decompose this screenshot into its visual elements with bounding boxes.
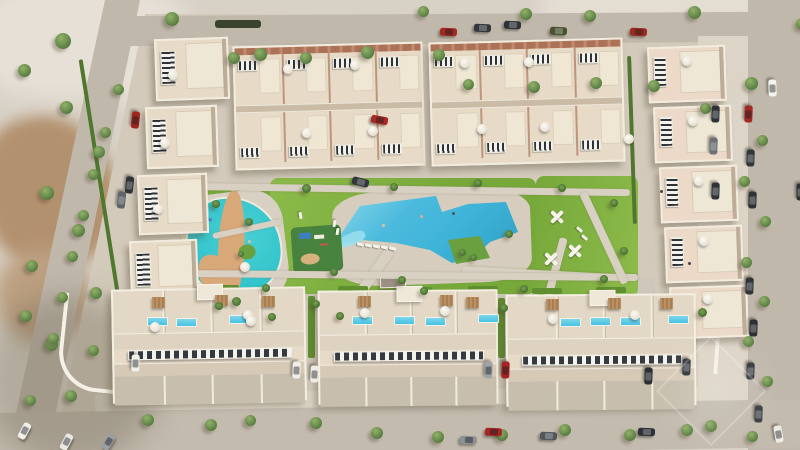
tree	[254, 48, 267, 61]
pergola	[466, 297, 479, 308]
sun-lounger	[373, 244, 381, 249]
hedge	[215, 20, 261, 28]
person	[382, 224, 385, 227]
parasol	[246, 316, 256, 326]
rooftop-pool	[425, 317, 446, 326]
palm-tree	[312, 300, 320, 308]
car	[504, 21, 521, 30]
solar-array	[334, 350, 484, 361]
rooftop-pool	[394, 316, 415, 325]
roof-terrace	[400, 113, 421, 149]
parasol	[477, 124, 487, 134]
parasol	[350, 60, 360, 70]
aerial-render	[0, 0, 800, 450]
car	[17, 422, 32, 441]
car	[748, 191, 757, 208]
parasol	[688, 116, 698, 126]
palm-tree	[459, 249, 466, 256]
solar-panel	[578, 52, 598, 64]
roof-terrace	[600, 109, 621, 145]
sun-lounger	[298, 212, 302, 219]
townhouse-right-row	[647, 45, 727, 104]
tree	[20, 310, 32, 322]
tree	[300, 52, 312, 64]
solar-panel	[160, 51, 176, 86]
solar-panel	[486, 142, 506, 154]
solar-panel	[240, 147, 260, 159]
sun-lounger	[365, 243, 373, 248]
palm-tree	[600, 275, 608, 283]
townhouse-unit	[575, 105, 624, 156]
roof-terrace	[166, 178, 204, 224]
rooftop-pool	[590, 317, 611, 326]
tree	[228, 52, 240, 64]
palm-tree	[420, 287, 428, 295]
terraced-building	[111, 286, 307, 403]
driveway-wall	[556, 381, 558, 410]
tree	[361, 46, 374, 59]
tree	[93, 146, 105, 158]
person	[688, 262, 691, 265]
sun-lounger	[332, 220, 336, 227]
parasol	[624, 134, 634, 144]
car	[460, 436, 477, 445]
tree	[25, 395, 36, 406]
tree	[65, 390, 77, 402]
solar-panel	[483, 55, 503, 67]
tree	[26, 260, 38, 272]
palm-tree	[698, 308, 707, 317]
palm-tree	[336, 312, 344, 320]
tree	[559, 424, 571, 436]
wall-shadow	[222, 39, 228, 97]
parasol	[682, 56, 692, 66]
rooftop-pool	[560, 318, 581, 327]
tree	[72, 224, 85, 237]
parasol	[440, 306, 450, 316]
palm-tree	[330, 268, 338, 276]
car	[630, 28, 647, 37]
car	[709, 137, 718, 154]
sun-lounger	[335, 228, 339, 235]
tree	[245, 415, 256, 426]
tree	[796, 18, 800, 30]
parasol	[548, 314, 558, 324]
tree	[433, 49, 445, 61]
roof-terrace	[258, 58, 280, 94]
driveway-strip	[115, 373, 305, 405]
wall-shadow	[731, 167, 737, 219]
pergola	[546, 299, 559, 310]
townhouse-left-row	[137, 173, 209, 235]
rooftop-pool	[668, 315, 689, 324]
car	[59, 433, 74, 450]
tree	[165, 12, 179, 26]
townhouse-right-row	[659, 165, 739, 224]
parasol	[302, 128, 312, 138]
palm-tree	[610, 199, 618, 207]
palm-tree	[302, 184, 311, 193]
parasol	[524, 57, 534, 67]
palm-tree	[232, 297, 241, 306]
terrace-wall	[455, 292, 457, 334]
car	[440, 28, 457, 37]
tree	[113, 84, 124, 95]
driveway-wall	[455, 377, 457, 406]
parasol	[703, 294, 713, 304]
townhouse-unit	[328, 52, 376, 103]
person	[420, 215, 423, 218]
townhouse-unit	[480, 107, 529, 158]
roof-terrace	[157, 244, 194, 287]
sun-lounger	[381, 245, 389, 250]
car	[310, 365, 319, 382]
pergola	[660, 298, 673, 309]
driveway-wall	[603, 381, 605, 410]
tree	[700, 103, 711, 114]
tree	[18, 64, 31, 77]
pergola	[358, 296, 371, 307]
tree	[371, 427, 383, 439]
car	[745, 277, 754, 294]
tree	[584, 10, 596, 22]
palm-tree	[215, 302, 223, 310]
wall-shadow	[719, 47, 725, 99]
palm-tree	[238, 251, 244, 257]
palm-tree	[558, 184, 566, 192]
car	[744, 105, 753, 122]
parasol	[283, 64, 293, 74]
roof-terrace	[260, 116, 282, 152]
tree	[90, 287, 102, 299]
tree	[88, 345, 99, 356]
townhouse-unit	[236, 112, 284, 163]
car	[501, 361, 510, 378]
roof-terrace	[456, 112, 478, 148]
tree	[624, 429, 636, 441]
palm-tree	[268, 313, 276, 321]
roof-terrace	[551, 52, 572, 88]
car	[746, 149, 755, 166]
driveway-wall	[410, 377, 412, 406]
parasol	[540, 122, 550, 132]
tree	[757, 135, 768, 146]
townhouse-unit	[478, 49, 527, 100]
play-structure	[548, 208, 566, 226]
tree	[648, 80, 660, 92]
tree	[55, 33, 71, 49]
parasol	[368, 126, 378, 136]
townhouse-unit	[573, 47, 622, 98]
car	[711, 182, 720, 199]
roof-terrace	[399, 55, 420, 91]
car	[117, 191, 127, 209]
solar-panel	[670, 237, 684, 267]
tree	[57, 292, 68, 303]
car	[485, 428, 502, 437]
parasol	[160, 138, 170, 148]
palm-tree	[505, 230, 513, 238]
pergola	[262, 296, 275, 307]
hedge	[79, 59, 120, 292]
roof-terrace	[505, 111, 526, 147]
driveway-strip	[320, 376, 496, 407]
car	[711, 105, 720, 122]
solar-array	[128, 348, 292, 361]
tree	[432, 431, 444, 443]
parasol	[630, 310, 640, 320]
car	[550, 27, 567, 36]
person	[660, 190, 663, 193]
tree	[418, 6, 429, 17]
tree	[142, 414, 154, 426]
tree	[688, 6, 701, 19]
parasol	[460, 58, 470, 68]
tree	[48, 333, 59, 344]
tree	[88, 169, 99, 180]
palm-tree	[390, 183, 398, 191]
tree	[590, 77, 602, 89]
play-structure	[566, 242, 584, 260]
flat-roof	[320, 333, 496, 351]
parasol	[694, 176, 704, 186]
parasol	[168, 70, 178, 80]
solar-panel	[382, 143, 402, 155]
solar-panel	[289, 146, 309, 158]
car	[474, 24, 491, 33]
palm-tree	[398, 276, 406, 284]
palm-tree	[620, 247, 628, 255]
rooftop-pool	[176, 318, 197, 327]
townhouse-unit	[374, 51, 422, 102]
roof-terrace	[503, 53, 524, 89]
palm-tree	[262, 284, 270, 292]
tree	[745, 77, 758, 90]
parasol	[240, 262, 250, 272]
palm-tree	[470, 254, 477, 261]
flat-roof	[114, 330, 304, 349]
townhouse-unit	[432, 108, 481, 159]
tree	[100, 127, 111, 138]
tree	[78, 210, 89, 221]
palm-tree	[520, 285, 528, 293]
pergola	[152, 297, 165, 308]
wall-shadow	[211, 107, 217, 165]
palm-tree	[474, 179, 482, 187]
tree	[741, 257, 752, 268]
car	[125, 176, 135, 194]
wall-shadow	[725, 107, 731, 159]
car	[292, 361, 301, 378]
tree	[760, 216, 771, 227]
sun-lounger	[357, 242, 365, 247]
sun-lounger	[581, 234, 588, 241]
solar-panel	[436, 143, 456, 155]
person	[452, 212, 455, 215]
townhouse-right-row	[664, 225, 744, 284]
driveway-wall	[365, 377, 367, 406]
palm-tree	[212, 200, 220, 208]
tree	[739, 176, 750, 187]
solar-panel	[135, 252, 151, 287]
townhouse-right-row	[653, 105, 733, 164]
car	[797, 184, 800, 201]
townhouse-left-row	[154, 37, 230, 102]
tree	[205, 419, 217, 431]
solar-panel	[581, 139, 601, 151]
stair-tower	[396, 286, 422, 302]
car	[101, 433, 117, 450]
tree	[520, 8, 532, 20]
solar-panel	[238, 60, 258, 72]
tree	[463, 79, 474, 90]
play-structure	[542, 250, 560, 268]
rooftop-pool	[478, 314, 499, 323]
roof-terrace	[552, 110, 573, 146]
solar-panel	[379, 56, 399, 68]
palm-tree	[245, 218, 253, 226]
tree	[759, 296, 770, 307]
parasol	[153, 204, 163, 214]
tree	[67, 251, 78, 262]
roof-terrace	[185, 42, 225, 90]
car	[131, 354, 140, 371]
townhouse-unit	[235, 54, 283, 105]
car	[768, 79, 777, 96]
tree	[310, 417, 322, 429]
palm-tree	[500, 304, 508, 312]
tree	[60, 101, 73, 114]
solar-panel	[665, 177, 679, 207]
car	[131, 111, 141, 129]
pergola	[440, 295, 453, 306]
parasol	[699, 236, 709, 246]
roof-terrace	[175, 110, 214, 158]
wall-shadow	[201, 175, 207, 231]
sun-lounger	[576, 226, 583, 233]
parasol	[150, 322, 160, 332]
parasol	[360, 308, 370, 318]
solar-panel	[335, 144, 355, 156]
pergola	[608, 298, 621, 309]
planter	[532, 288, 562, 294]
tree	[528, 81, 540, 93]
car	[484, 361, 493, 378]
townhouse-unit	[527, 106, 576, 157]
tree	[40, 186, 54, 200]
townhouse-left-row	[145, 105, 219, 169]
car	[540, 432, 557, 441]
wall-shadow	[736, 227, 742, 279]
solar-panel	[533, 140, 553, 152]
solar-panel	[659, 117, 673, 147]
person	[248, 240, 251, 243]
